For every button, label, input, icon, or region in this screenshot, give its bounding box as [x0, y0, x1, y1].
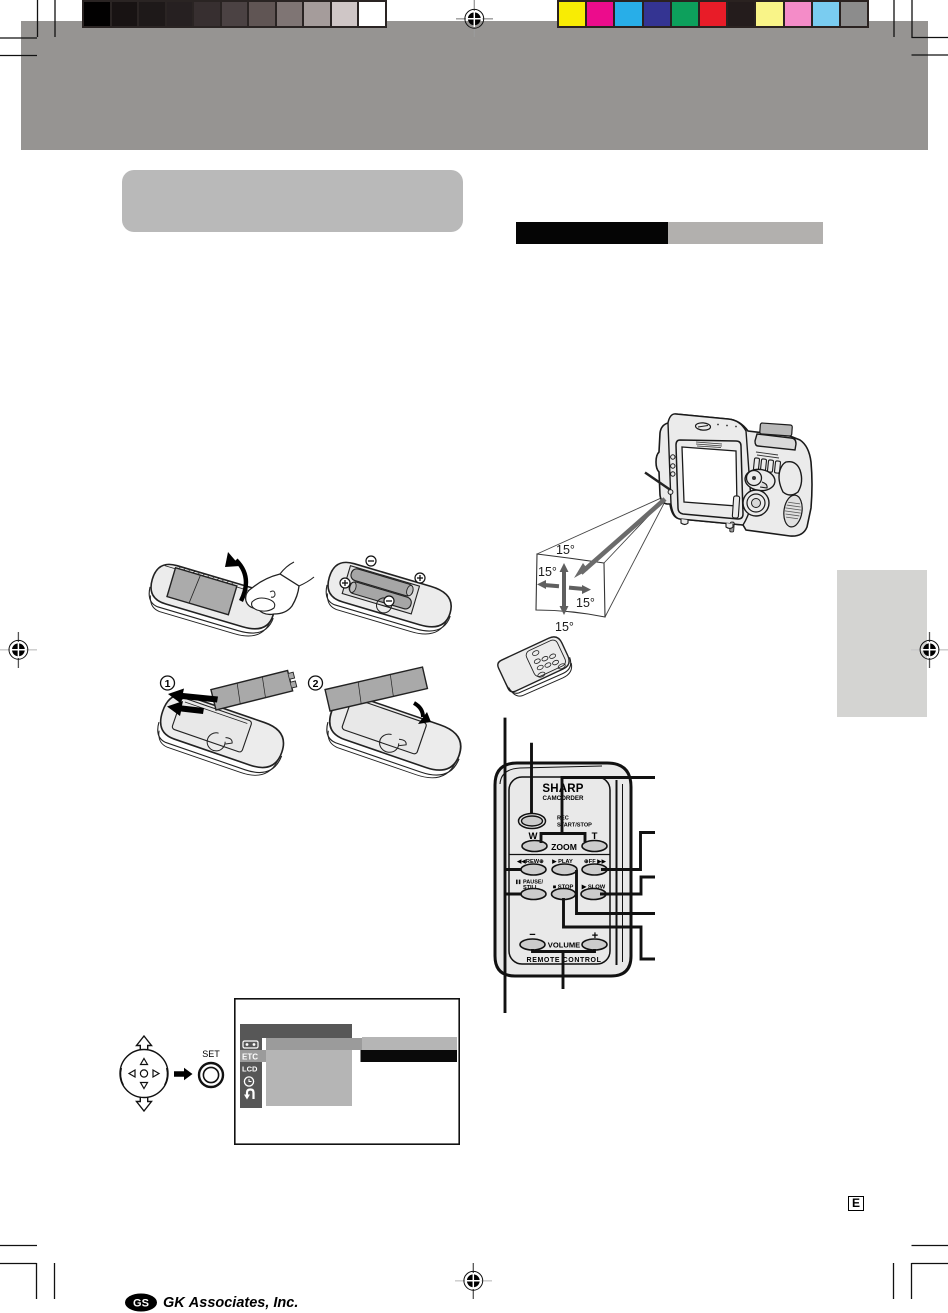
svg-text:ETC: ETC	[242, 1053, 258, 1062]
svg-text:15°: 15°	[538, 565, 557, 579]
svg-text:15°: 15°	[555, 620, 574, 634]
svg-text:SET: SET	[202, 1049, 220, 1059]
svg-text:VOLUME: VOLUME	[548, 941, 581, 950]
svg-text:GS: GS	[133, 1298, 149, 1310]
svg-text:15°: 15°	[576, 596, 595, 610]
svg-text:LCD: LCD	[242, 1065, 258, 1074]
svg-text:15°: 15°	[556, 543, 575, 557]
svg-text:2: 2	[313, 678, 319, 690]
svg-text:1: 1	[165, 678, 171, 690]
svg-text:ZOOM: ZOOM	[551, 842, 577, 852]
